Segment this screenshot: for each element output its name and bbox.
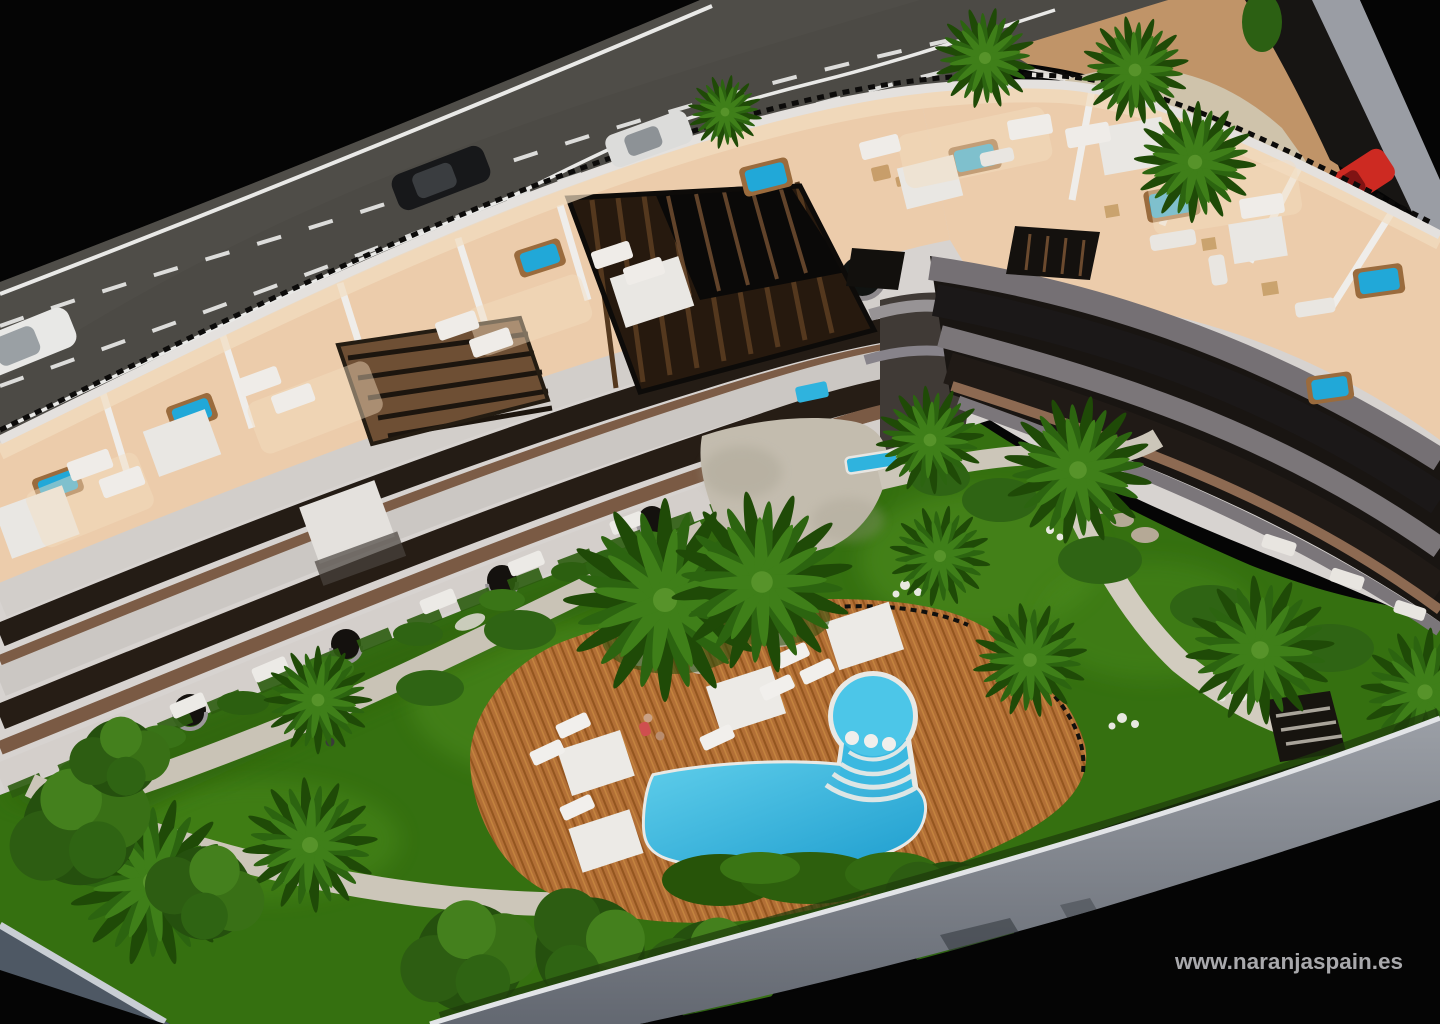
svg-text:www.naranjaspain.es: www.naranjaspain.es <box>1174 949 1403 974</box>
